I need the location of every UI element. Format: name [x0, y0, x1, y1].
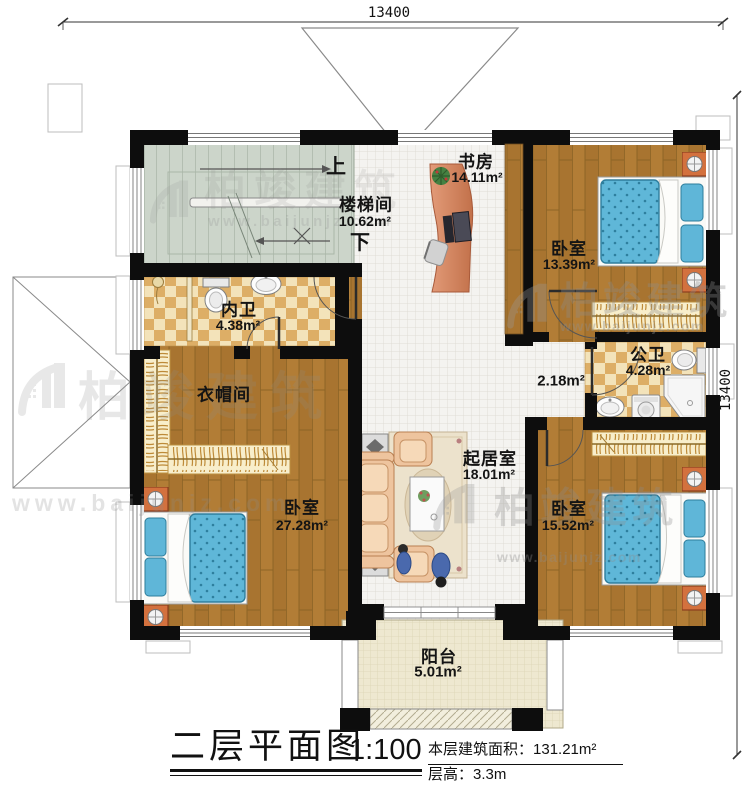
label-balcony-area: 5.01m²: [414, 665, 462, 680]
title-block-divider: [428, 764, 623, 766]
label-bedroom-left: 卧室: [284, 500, 320, 517]
nightstand: [682, 152, 707, 176]
dimension-top: 13400: [368, 5, 410, 21]
nightstand: [143, 605, 168, 629]
label-living-area: 18.01m²: [463, 467, 515, 481]
label-bedroom-left-area: 27.28m²: [276, 518, 328, 532]
label-stairwell: 楼梯间: [339, 197, 393, 214]
label-corridor-area: 2.18m²: [537, 374, 585, 389]
bed-top-right: [598, 177, 707, 266]
floor-plan-page: 柏竣建筑 www.baijunjz.com 柏竣建筑 www.baijunjz.…: [0, 0, 750, 786]
living-room-set: [356, 432, 467, 588]
floor-height-value: 3.3m: [473, 766, 506, 783]
nightstand: [682, 586, 707, 610]
label-inner-bath-area: 4.38m²: [216, 318, 260, 332]
watermark-url-right: www.baijunjz.com: [560, 319, 705, 333]
label-bedroom-br: 卧室: [551, 501, 587, 518]
floor-area-row: 本层建筑面积：131.21m²: [428, 742, 596, 757]
wardrobe-cloakroom-bottom: [168, 445, 290, 474]
label-living: 起居室: [463, 451, 517, 468]
label-bedroom-tr-area: 13.39m²: [543, 257, 595, 271]
label-stairs-down: 下: [350, 233, 370, 253]
plan-scale: 1:100: [349, 736, 422, 765]
page-title: 二层平面图: [170, 729, 365, 764]
label-bedroom-br-area: 15.52m²: [542, 518, 594, 532]
bed-bottom-left: [142, 512, 247, 604]
label-bedroom-tr: 卧室: [551, 241, 587, 258]
label-public-bath: 公卫: [630, 347, 666, 364]
label-stairwell-area: 10.62m²: [339, 214, 391, 228]
title-underline-1: [170, 769, 422, 772]
label-public-bath-area: 4.28m²: [626, 363, 670, 377]
floor-area-label: 本层建筑面积：: [428, 741, 533, 758]
nightstand: [682, 467, 707, 491]
title-underline-2: [170, 775, 422, 777]
label-inner-bath: 内卫: [221, 302, 257, 319]
floor-area-value: 131.21m²: [533, 741, 596, 758]
watermark-url-center: www.baijunjz.com: [497, 550, 642, 564]
watermark-url-left: www.baijunjz.com: [12, 492, 291, 515]
balcony-sliding-door: [384, 607, 495, 618]
label-stairs-up: 上: [326, 157, 346, 177]
wardrobe-bedroom-bottom-right: [592, 432, 706, 456]
label-study-area: 14.11m²: [451, 170, 502, 184]
floor-height-row: 层高：3.3m: [428, 767, 506, 782]
watermark-text-right: 柏竣建筑: [560, 283, 732, 321]
floor-height-label: 层高：: [428, 766, 473, 783]
dimension-right: 13400: [718, 369, 734, 411]
label-study: 书房: [458, 154, 494, 171]
label-cloakroom: 衣帽间: [197, 387, 251, 404]
